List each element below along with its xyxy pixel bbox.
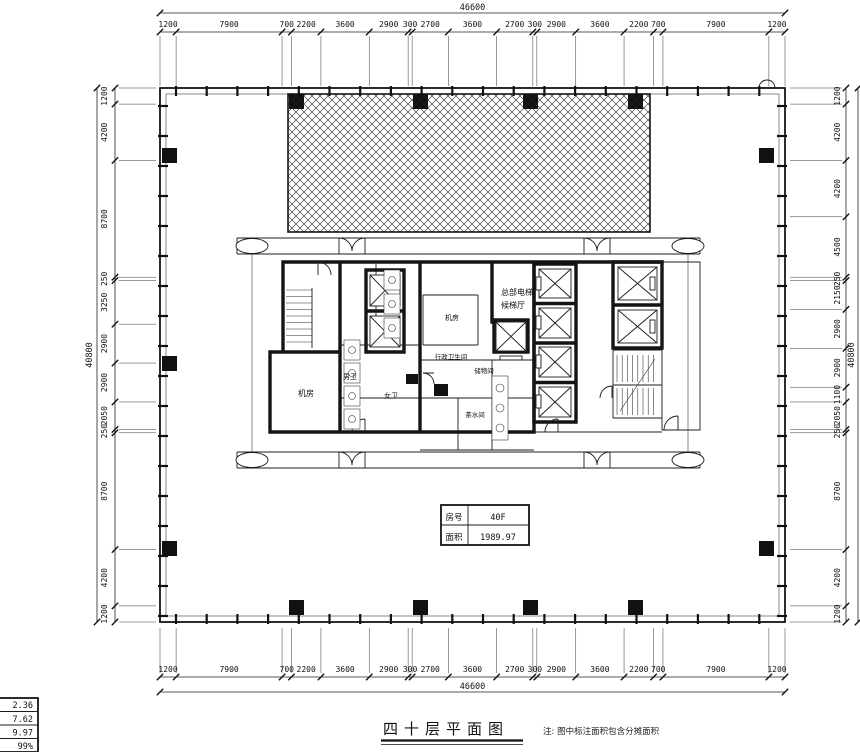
room-info-table: 房号 40F 面积 1989.97 [441,505,529,545]
dim-label: 1200 [767,20,786,29]
dim-label: 3600 [590,665,609,674]
dim-label: 250 [833,424,842,439]
dim-tick [855,85,860,91]
dim-label: 2900 [100,373,109,392]
dim-label: 700 [280,665,295,674]
lens-symbol [236,239,268,254]
dim-total-label: 40800 [847,342,857,368]
dim-label: 700 [280,20,295,29]
dim-label: 2700 [505,665,524,674]
dim-label: 2200 [629,20,648,29]
title-block: 四十层平面图 注: 图中标注面积包含分摊面积 [381,720,660,745]
dim-label: 2050 [833,406,842,425]
double-door [339,452,365,468]
corner-table-row: 9.97 [13,729,33,739]
staircase-right [613,355,662,415]
dim-label: 2200 [297,20,316,29]
elevator-door [650,320,655,333]
elevator-sill [500,356,522,360]
room-label-mens-wc: 男卫 [343,373,357,381]
room-label-tea-room: 茶水间 [465,410,485,419]
column [162,356,177,371]
dim-label: 1200 [100,604,109,623]
dim-label: 4200 [833,179,842,198]
wc-stall [384,318,400,338]
shaft-block [434,384,448,396]
dim-tick [855,619,860,625]
dim-label: 4200 [833,568,842,587]
dim-label: 300 [528,20,543,29]
column [523,600,538,615]
dim-label: 2700 [505,20,524,29]
dim-label: 1100 [833,385,842,404]
elevator-door [536,355,541,368]
column [162,148,177,163]
dim-label: 2700 [421,20,440,29]
wc-stall [344,386,360,406]
dimension-chain-left: 1200420087002503250290029002050250870042… [85,85,156,625]
dim-label: 4200 [833,122,842,141]
dim-label: 2700 [421,665,440,674]
area-value: 1989.97 [480,533,516,543]
column [628,600,643,615]
area-label: 面积 [445,532,463,543]
dim-label: 2900 [833,319,842,338]
dim-label: 2900 [547,20,566,29]
room-label-womens-wc: 女卫 [384,391,398,400]
dim-label: 3250 [100,293,109,312]
dim-label: 300 [528,665,543,674]
dim-label: 8700 [100,481,109,500]
crosshatch-region [288,94,650,232]
staircase-left [286,288,312,348]
double-door [339,238,365,254]
dim-label: 1200 [833,604,842,623]
room-label-machine-b: 机房 [298,388,314,398]
dim-label: 2900 [100,334,109,353]
dim-label: 2900 [379,20,398,29]
dimension-chain-top: 1200790070022003600290030027003600270030… [157,3,788,86]
dim-label: 3600 [335,665,354,674]
lens-symbol [236,453,268,468]
service-core [270,262,700,450]
double-door [584,452,610,468]
column [289,600,304,615]
room-label-storage: 储物间 [474,366,494,375]
drawing-note: 注: 图中标注面积包含分摊面积 [543,726,660,737]
dim-label: 7900 [706,665,725,674]
column [413,600,428,615]
dim-label: 1200 [158,20,177,29]
dim-label: 2050 [100,406,109,425]
room-label-hq-lobby-1: 总部电梯 [501,287,533,297]
drawing-title: 四十层平面图 [383,720,509,738]
sink-counter [492,376,508,440]
dim-label: 2150 [833,285,842,304]
dim-label: 1200 [158,665,177,674]
dim-label: 700 [651,20,666,29]
corner-table-row: 7.62 [13,715,33,725]
shaft-block [406,374,418,384]
dim-label: 2900 [547,665,566,674]
dim-total-label: 40800 [85,342,95,368]
dim-label: 4500 [833,237,842,256]
dim-label: 250 [100,424,109,439]
dim-label: 7900 [219,665,238,674]
dim-label: 250 [100,271,109,286]
dim-label: 1200 [100,86,109,105]
dim-label: 4200 [100,568,109,587]
dim-label: 2200 [629,665,648,674]
dim-label: 7900 [219,20,238,29]
room-label-exec-wc: 行政卫生间 [435,352,468,361]
dim-label: 300 [403,20,418,29]
wc-stall [344,340,360,360]
room-number-value: 40F [490,513,505,523]
elevator-door [536,395,541,408]
wc-stall [384,270,400,290]
elevator-door [536,316,541,329]
column [759,541,774,556]
dim-label: 7900 [706,20,725,29]
lens-symbol [672,239,704,254]
dim-label: 700 [651,665,666,674]
dim-label: 3600 [463,20,482,29]
dimension-chain-bottom: 1200790070022003600290030027003600270030… [157,628,788,695]
wc-stall [344,409,360,429]
column [162,541,177,556]
wall-dome-symbol [759,80,775,88]
dim-total-label: 46600 [460,3,486,13]
dim-label: 3600 [463,665,482,674]
corner-table-row: 2.36 [13,701,33,711]
elevator-door [536,277,541,290]
core-walls [270,262,662,432]
dim-label: 4200 [100,122,109,141]
lens-symbol [672,453,704,468]
floorplan-canvas: 1200790070022003600290030027003600270030… [0,0,860,752]
corner-statistics-table: 2.36 7.62 9.97 99% [0,698,38,752]
dim-label: 1200 [767,665,786,674]
wc-stall [384,294,400,314]
dim-label: 300 [403,665,418,674]
dim-label: 2200 [297,665,316,674]
column [759,148,774,163]
room-label-hq-lobby-2: 候梯厅 [501,300,525,310]
dim-label: 3600 [590,20,609,29]
dim-label: 250 [833,271,842,286]
floor-plan-page: 1200790070022003600290030027003600270030… [0,0,860,752]
dim-total-label: 46600 [460,682,486,692]
dim-label: 8700 [100,209,109,228]
dim-label: 8700 [833,481,842,500]
corner-table-row: 99% [18,742,33,752]
room-number-label: 房号 [445,512,462,523]
hatched-area [288,94,650,232]
elevator-door [650,277,655,290]
dim-label: 1200 [833,86,842,105]
dimension-chain-right: 1200420042004500250215029002900110020502… [790,85,860,625]
room-label-machine-a: 机房 [445,313,459,322]
dim-label: 2900 [379,665,398,674]
double-door [584,238,610,254]
dim-label: 2900 [833,358,842,377]
dim-label: 3600 [335,20,354,29]
